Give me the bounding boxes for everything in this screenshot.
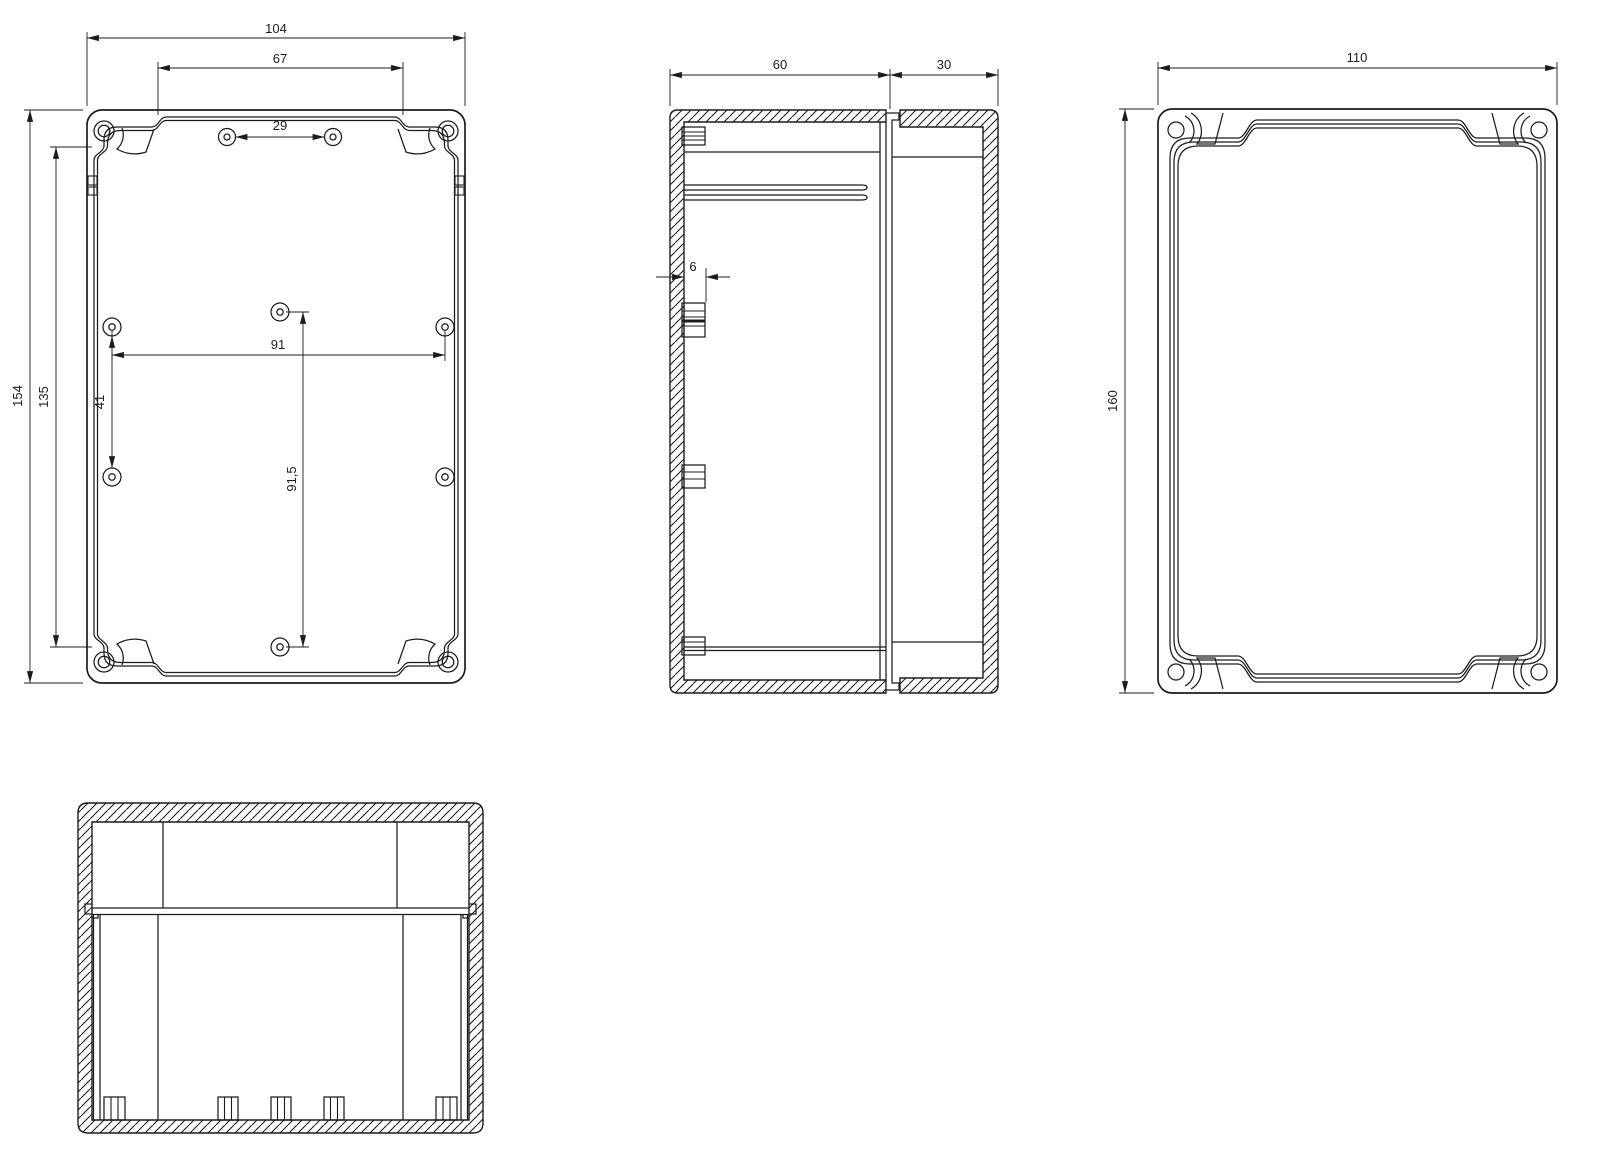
dim-label-160: 160 [1105, 390, 1120, 412]
sheet-background [0, 0, 1600, 1169]
dim-label-41: 41 [92, 395, 107, 409]
dim-label-154: 154 [10, 385, 25, 407]
dim-label-110: 110 [1347, 50, 1368, 65]
dim-label-135: 135 [36, 386, 51, 408]
dim-label-91-5: 91,5 [284, 466, 299, 491]
dim-label-29: 29 [273, 118, 287, 133]
dim-label-30: 30 [937, 57, 951, 72]
dim-label-60: 60 [773, 57, 787, 72]
dim-label-6: 6 [689, 259, 696, 274]
dim-label-67: 67 [273, 51, 287, 66]
dim-label-104: 104 [265, 21, 287, 36]
drawing-sheet: 104 67 29 154 135 41 91 [0, 0, 1600, 1169]
dim-label-91: 91 [271, 337, 285, 352]
drawing-canvas: 104 67 29 154 135 41 91 [0, 0, 1600, 1169]
